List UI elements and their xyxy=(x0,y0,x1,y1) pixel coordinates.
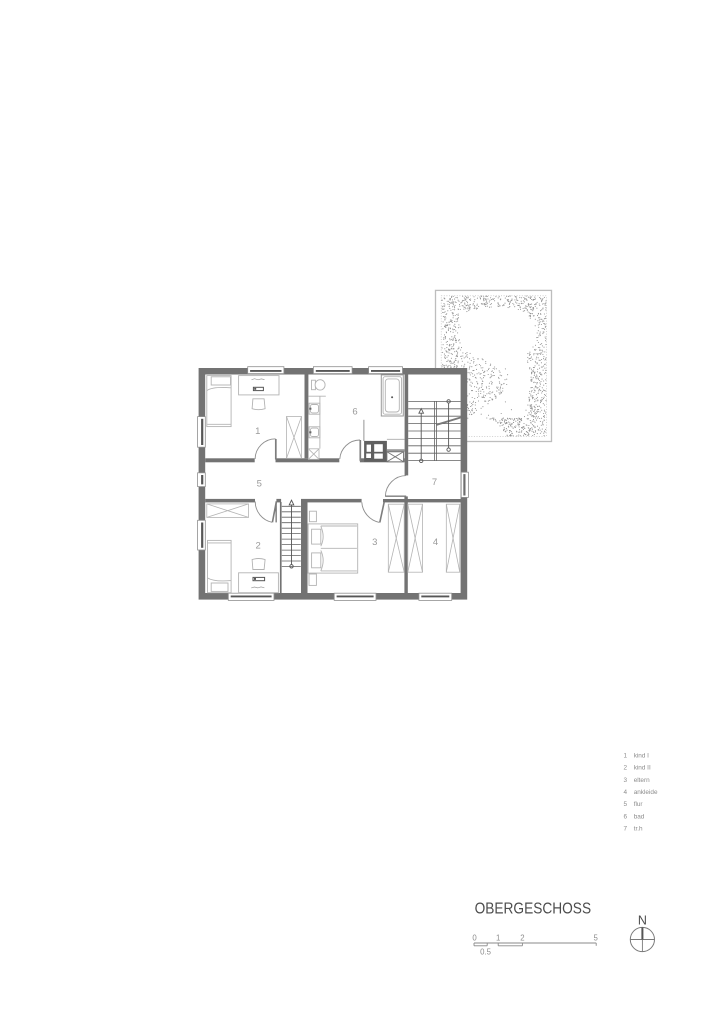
svg-text:0: 0 xyxy=(472,933,477,942)
svg-text:OBERGESCHOSS: OBERGESCHOSS xyxy=(475,901,591,918)
svg-text:0.5: 0.5 xyxy=(480,948,492,957)
svg-text:kind II: kind II xyxy=(634,765,651,772)
svg-text:1: 1 xyxy=(255,426,260,437)
svg-text:4: 4 xyxy=(433,537,438,548)
svg-text:4: 4 xyxy=(623,789,627,796)
svg-text:kind I: kind I xyxy=(634,752,649,759)
svg-text:6: 6 xyxy=(623,813,627,820)
svg-text:7: 7 xyxy=(432,477,437,488)
svg-text:2: 2 xyxy=(623,765,627,772)
svg-text:7: 7 xyxy=(623,826,627,833)
svg-text:2: 2 xyxy=(520,933,524,942)
svg-text:1: 1 xyxy=(496,933,500,942)
svg-text:6: 6 xyxy=(352,406,357,417)
svg-text:eltern: eltern xyxy=(634,777,650,784)
svg-text:ankleide: ankleide xyxy=(634,789,658,796)
svg-text:3: 3 xyxy=(372,537,377,548)
svg-text:5: 5 xyxy=(623,801,627,808)
svg-text:5: 5 xyxy=(257,478,262,489)
svg-text:2: 2 xyxy=(256,541,261,552)
svg-text:5: 5 xyxy=(594,933,599,942)
svg-text:1: 1 xyxy=(623,752,627,759)
svg-text:N: N xyxy=(638,913,647,927)
svg-text:3: 3 xyxy=(623,777,627,784)
svg-text:tr.h: tr.h xyxy=(634,826,643,833)
svg-text:flur: flur xyxy=(634,801,644,808)
svg-text:bad: bad xyxy=(634,813,645,820)
